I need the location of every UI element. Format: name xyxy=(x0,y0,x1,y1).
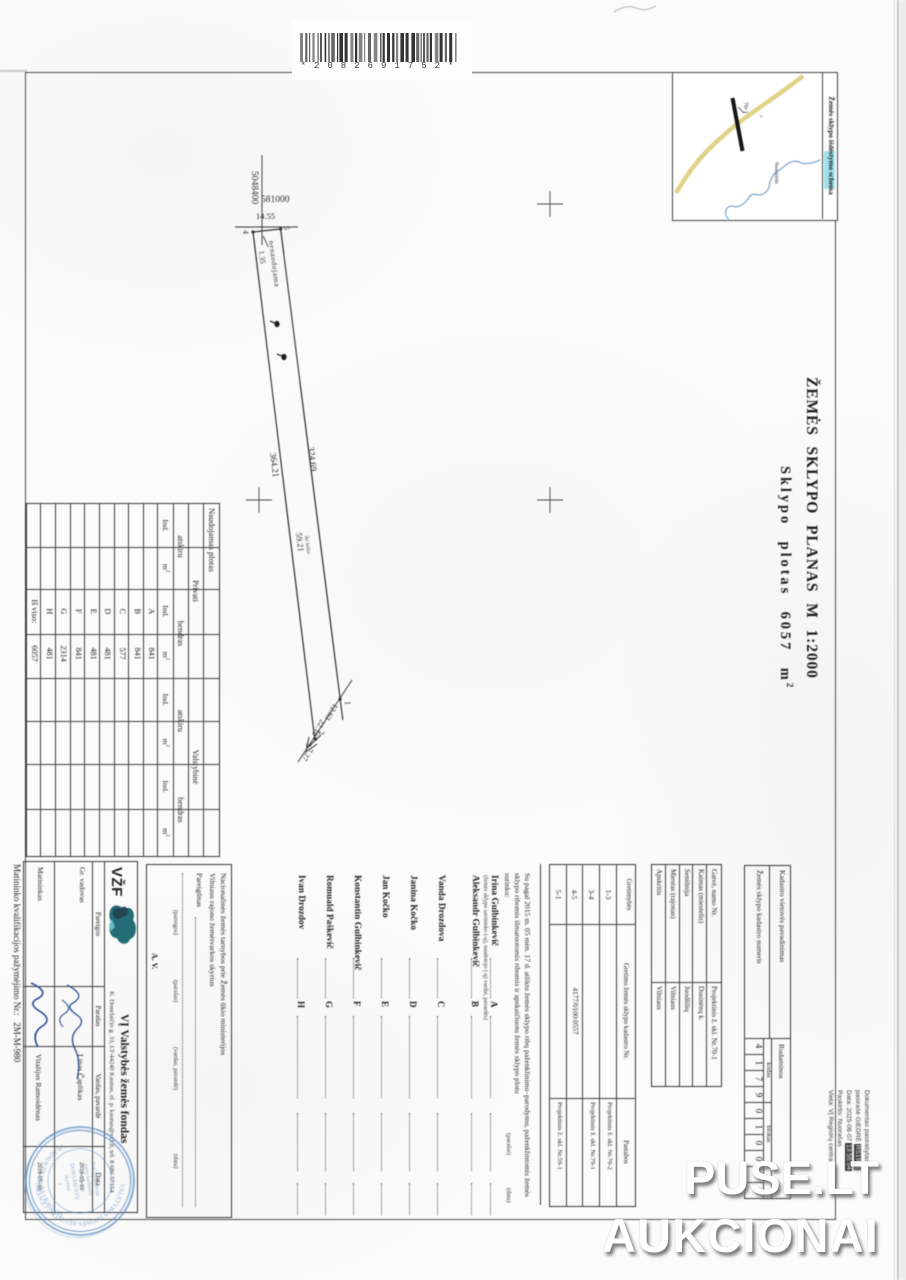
svg-text:4: 4 xyxy=(241,230,250,234)
svg-text:VILNIAUS FILIALAS • KAUNAS: VILNIAUS FILIALAS • KAUNAS xyxy=(37,1142,66,1220)
svg-text:581000: 581000 xyxy=(261,195,290,205)
svg-text:iki kelio: iki kelio xyxy=(303,536,311,555)
svg-text:5048400: 5048400 xyxy=(249,171,259,205)
svg-text:324.69: 324.69 xyxy=(306,446,319,472)
svg-text:skyrius: skyrius xyxy=(63,1174,72,1192)
svg-text:1.35: 1.35 xyxy=(257,250,268,264)
svg-text:364.21: 364.21 xyxy=(268,452,281,478)
svg-text:14.55: 14.55 xyxy=(256,211,275,221)
svg-text:5: 5 xyxy=(282,226,291,230)
svg-text:nenaudojama: nenaudojama xyxy=(267,240,282,287)
svg-text:7.27: 7.27 xyxy=(300,746,315,763)
svg-text:1: 1 xyxy=(343,701,352,705)
svg-text:12.63: 12.63 xyxy=(323,702,340,722)
svg-text:1: 1 xyxy=(56,1182,62,1186)
